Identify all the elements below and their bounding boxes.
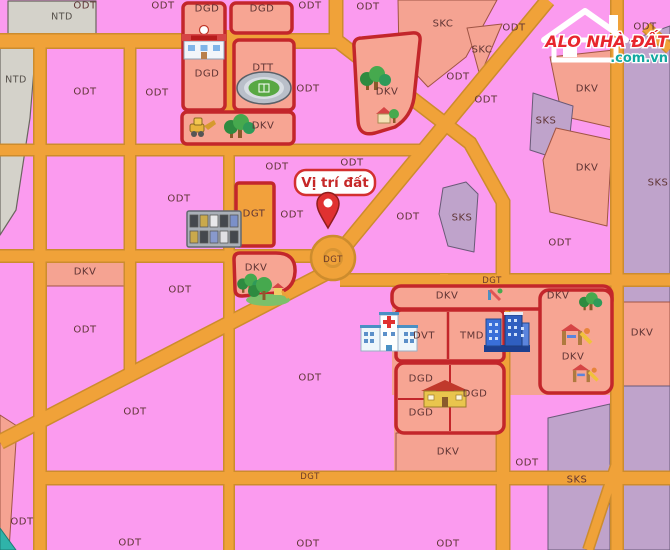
zoning-map: NTDNTDODTODTODTODTODTODTSKCSKCODTODTDKVO… [0, 0, 670, 550]
zone-label-sks: SKS [536, 116, 557, 127]
zone-dkv [543, 128, 612, 226]
zone-label-skc: SKC [472, 45, 493, 56]
zone-label-sks: SKS [648, 178, 669, 189]
zone-label-dgd: DGD [195, 4, 220, 15]
zone-label-odt: ODT [118, 538, 142, 549]
zone-label-dgd: DGD [195, 69, 220, 80]
zone-label-odt: ODT [298, 373, 322, 384]
zone-label-odt: ODT [73, 87, 97, 98]
house-chimney [609, 15, 618, 30]
logo-domain: .com.vn [610, 51, 668, 66]
logo-title: ALO NHÀ ĐẤT [543, 30, 669, 51]
zone-label-odt: ODT [151, 1, 175, 12]
zone-label-dkv: DKV [376, 87, 399, 98]
zone-label-odt: ODT [168, 285, 192, 296]
zone-label-dkv: DKV [576, 84, 599, 95]
apartment-icon [187, 211, 241, 247]
zone-label-odt: ODT [280, 210, 304, 221]
zone-label-dkv: DKV [74, 267, 97, 278]
zone-label-odt: ODT [474, 95, 498, 106]
zone-label-odt: ODT [265, 162, 289, 173]
zone-label-sks: SKS [452, 213, 473, 224]
zone-label-dvt: DVT [413, 331, 435, 342]
zone-label-odt: ODT [145, 88, 169, 99]
zone-label-odt: ODT [356, 2, 380, 13]
zone-label-odt: ODT [633, 22, 657, 33]
zone-label-dgd: DGD [463, 389, 488, 400]
zone-label-odt: ODT [123, 407, 147, 418]
marker-label: Vị trí đất [301, 174, 369, 191]
zone-label-odt: ODT [296, 539, 320, 550]
zone-label-odt: ODT [73, 1, 97, 12]
zone-label-odt: ODT [446, 72, 470, 83]
zone-label-odt: ODT [10, 517, 34, 528]
zone-label-odt: ODT [298, 1, 322, 12]
zone-label-odt: ODT [167, 194, 191, 205]
zone-label-dgd: DGD [409, 374, 434, 385]
zone-label-ntd: NTD [5, 75, 27, 86]
zone-label-odt: ODT [296, 84, 320, 95]
zone-label-sks: SKS [567, 475, 588, 486]
zone-label-odt: ODT [396, 212, 420, 223]
zone-label-tmd: TMD [459, 331, 484, 342]
map-pin-dot [324, 199, 333, 208]
stadium-icon [237, 72, 291, 104]
zone-label-dgt: DGT [482, 276, 502, 286]
zone-label-dkv: DKV [562, 352, 585, 363]
zone-label-odt: ODT [436, 539, 460, 550]
zone-label-odt: ODT [340, 158, 364, 169]
zone-label-dkv: DKV [437, 447, 460, 458]
zone-label-ntd: NTD [51, 12, 73, 23]
zone-label-dgt: DGT [243, 209, 266, 220]
zone-label-odt: ODT [502, 23, 526, 34]
zone-label-dkv: DKV [252, 121, 275, 132]
zone-label-dkv: DKV [576, 163, 599, 174]
zone-label-dkv: DKV [547, 291, 570, 302]
zone-label-odt: ODT [548, 238, 572, 249]
zone-label-dgt: DGT [323, 255, 343, 265]
zone-label-dgd: DGD [409, 408, 434, 419]
zone-label-dtt: DTT [252, 63, 274, 74]
zone-label-dkv: DKV [436, 291, 459, 302]
zone-label-skc: SKC [433, 19, 454, 30]
zone-label-dkv: DKV [631, 328, 654, 339]
zone-label-odt: ODT [515, 458, 539, 469]
zone-label-dgt: DGT [300, 472, 320, 482]
zone-label-odt: ODT [73, 325, 97, 336]
zone-label-dkv: DKV [245, 263, 268, 274]
zone-label-dgd: DGD [250, 4, 275, 15]
